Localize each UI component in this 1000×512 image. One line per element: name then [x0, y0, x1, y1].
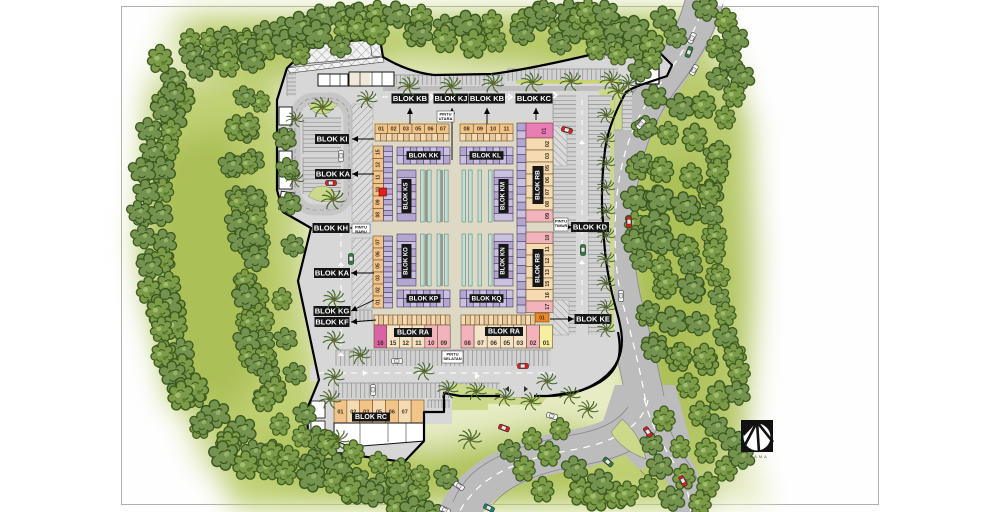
svg-text:BLOK KS: BLOK KS [404, 183, 410, 210]
svg-text:BLOK RB: BLOK RB [535, 253, 542, 283]
svg-text:01: 01 [337, 409, 343, 415]
svg-text:13: 13 [545, 269, 551, 275]
svg-text:02: 02 [530, 341, 537, 347]
svg-text:BARU: BARU [355, 229, 367, 234]
svg-text:BLOK RB: BLOK RB [535, 170, 542, 200]
svg-text:03: 03 [375, 275, 381, 281]
svg-text:03: 03 [403, 127, 409, 133]
svg-text:BLOK KB: BLOK KB [393, 94, 428, 103]
svg-text:15: 15 [545, 281, 551, 287]
svg-text:SELATAN: SELATAN [443, 356, 461, 361]
svg-text:08: 08 [375, 212, 381, 218]
svg-text:06: 06 [375, 251, 381, 257]
svg-text:BLOK KK: BLOK KK [409, 152, 439, 159]
svg-text:01: 01 [539, 316, 545, 322]
svg-text:11: 11 [415, 341, 422, 347]
svg-text:10: 10 [545, 235, 551, 241]
svg-text:01: 01 [378, 127, 384, 133]
svg-text:10: 10 [428, 341, 435, 347]
svg-text:BLOK KC: BLOK KC [517, 94, 552, 103]
svg-text:11: 11 [375, 174, 381, 180]
svg-text:12: 12 [402, 341, 409, 347]
svg-text:06: 06 [545, 177, 551, 183]
svg-text:02: 02 [545, 141, 551, 147]
svg-text:UTARA: UTARA [439, 116, 453, 121]
svg-text:09: 09 [375, 199, 381, 205]
svg-text:17: 17 [545, 304, 551, 310]
svg-text:05: 05 [415, 127, 421, 133]
svg-text:08: 08 [464, 127, 470, 133]
svg-text:06: 06 [427, 127, 433, 133]
svg-text:02: 02 [375, 287, 381, 293]
svg-text:11: 11 [503, 127, 509, 133]
svg-text:09: 09 [545, 213, 551, 219]
svg-text:06: 06 [490, 341, 497, 347]
svg-text:08: 08 [464, 341, 471, 347]
svg-text:01: 01 [543, 341, 550, 347]
svg-text:07: 07 [545, 189, 551, 195]
svg-text:16: 16 [377, 341, 384, 347]
svg-text:08: 08 [545, 201, 551, 207]
svg-text:03: 03 [545, 153, 551, 159]
svg-text:BLOK KP: BLOK KP [409, 295, 439, 302]
svg-text:07: 07 [477, 341, 484, 347]
svg-text:01: 01 [375, 299, 381, 305]
svg-text:16: 16 [545, 292, 551, 298]
svg-text:05: 05 [503, 341, 510, 347]
svg-text:05: 05 [545, 165, 551, 171]
svg-text:TIMUR: TIMUR [555, 223, 568, 228]
svg-text:BLOK KA: BLOK KA [316, 170, 351, 179]
svg-text:07: 07 [402, 409, 408, 415]
svg-text:02: 02 [390, 127, 396, 133]
svg-text:15: 15 [390, 341, 397, 347]
svg-text:03: 03 [517, 341, 524, 347]
svg-text:BLOK KL: BLOK KL [472, 152, 501, 159]
svg-text:BLOK KJ: BLOK KJ [435, 94, 468, 103]
svg-text:BLOK KO: BLOK KO [404, 247, 410, 275]
svg-text:09: 09 [477, 127, 483, 133]
svg-text:BLOK KH: BLOK KH [314, 224, 348, 233]
svg-text:15: 15 [375, 149, 381, 155]
svg-text:07: 07 [440, 127, 446, 133]
svg-text:BLOK KM: BLOK KM [501, 182, 507, 210]
svg-text:05: 05 [375, 263, 381, 269]
svg-text:BLOK KG: BLOK KG [315, 307, 350, 316]
svg-text:BLOK RA: BLOK RA [488, 329, 520, 336]
svg-text:BLOK RC: BLOK RC [355, 414, 387, 421]
svg-text:10: 10 [490, 127, 496, 133]
svg-text:07: 07 [375, 239, 381, 245]
svg-text:BLOK KN: BLOK KN [501, 247, 507, 274]
svg-text:BLOK KB: BLOK KB [470, 94, 505, 103]
svg-text:BLOK KQ: BLOK KQ [472, 295, 502, 302]
svg-text:09: 09 [440, 341, 447, 347]
svg-text:BLOK RA: BLOK RA [397, 330, 429, 337]
svg-text:UTAMA: UTAMA [745, 454, 769, 459]
svg-text:BLOK KI: BLOK KI [317, 135, 348, 144]
svg-text:01: 01 [542, 127, 548, 134]
svg-text:BLOK KF: BLOK KF [315, 318, 349, 327]
svg-text:12: 12 [375, 162, 381, 168]
svg-text:11: 11 [545, 246, 551, 252]
svg-text:BLOK KA: BLOK KA [315, 269, 350, 278]
svg-text:12: 12 [545, 258, 551, 264]
